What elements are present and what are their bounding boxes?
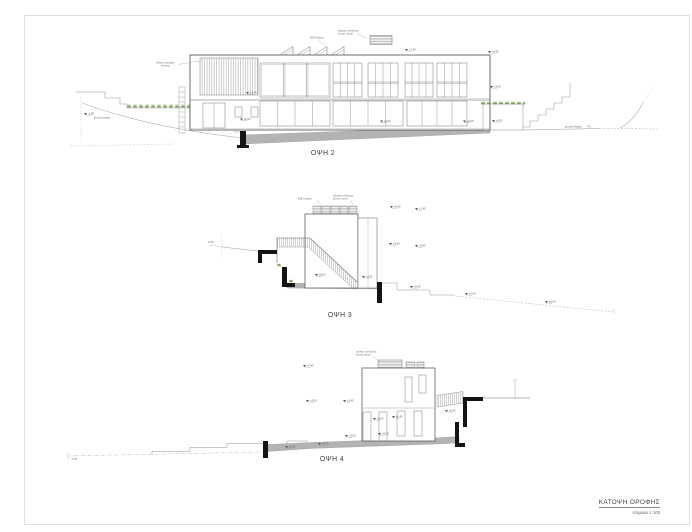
leader-line	[372, 356, 380, 361]
elevation-4-caption: ΟΨΗ 4	[297, 456, 367, 463]
svg-text:±0.00: ±0.00	[244, 117, 251, 121]
svg-text:±0.00: ±0.00	[549, 300, 556, 304]
building	[179, 55, 490, 133]
level-text: -2.80	[88, 112, 94, 116]
collector-label-2: ζεστού νερού	[356, 354, 371, 357]
svg-text:+0.05: +0.05	[382, 432, 389, 436]
solar-panels	[280, 47, 344, 56]
railing	[437, 379, 530, 407]
terrain-right	[523, 83, 660, 130]
solar-collector	[406, 362, 415, 368]
leader-line	[357, 34, 367, 39]
svg-text:+0.05: +0.05	[496, 119, 503, 123]
svg-text:+0.05: +0.05	[349, 434, 356, 438]
leader-line	[317, 201, 321, 206]
svg-text:+3.45: +3.45	[494, 85, 501, 89]
elevation-3-caption: ΟΨΗ 3	[305, 312, 375, 319]
svg-text:+3.45: +3.45	[347, 399, 354, 403]
svg-text:+0.05: +0.05	[467, 119, 474, 123]
svg-text:+6.95: +6.95	[394, 205, 401, 209]
solar-collector	[378, 360, 402, 368]
ground-label-left: φυσικό έδαφος	[94, 117, 111, 120]
sheet-scale: Κλίμακα 1:100	[599, 510, 660, 515]
solar-collector	[417, 362, 424, 368]
svg-text:+0.05: +0.05	[322, 442, 329, 446]
retaining-wall-upper	[258, 250, 277, 263]
svg-text:±0.00: ±0.00	[289, 445, 296, 449]
level-text: -7.45	[71, 457, 77, 461]
planting	[289, 280, 293, 283]
solar-collector	[370, 36, 392, 45]
building	[362, 356, 435, 441]
roof-equipment: ηλιακός συλλέκτης ζεστού νερού Φ/Β πλαίσ…	[280, 30, 392, 56]
planting-strip-right	[480, 101, 525, 104]
leader-line	[351, 201, 353, 206]
ground-label-right: φυσικό έδαφος	[565, 125, 582, 128]
elevation-4-drawing: -7.45	[60, 340, 540, 470]
retaining-wall-upper-right	[463, 397, 483, 427]
svg-text:+0.05: +0.05	[469, 292, 476, 296]
title-block: ΚΑΤΟΨΗ ΟΡΟΦΗΣ Κλίμακα 1:100	[599, 491, 660, 515]
svg-text:+3.45: +3.45	[393, 242, 400, 246]
svg-text:+6.95: +6.95	[492, 50, 499, 54]
louver-screen	[200, 58, 258, 95]
drawing-sheet: -2.80 φυσικό έδαφος φυσικό έδαφος 7%	[0, 0, 692, 532]
elevation-3-figure: 2.5%	[205, 190, 625, 325]
elevation-2-caption: ΟΨΗ 2	[288, 150, 358, 157]
svg-text:+0.45: +0.45	[449, 409, 456, 413]
retaining-wall-right	[377, 282, 382, 303]
svg-text:+0.45: +0.45	[396, 415, 403, 419]
retaining-wall-lower	[282, 267, 295, 287]
svg-text:+3.45: +3.45	[250, 91, 257, 95]
elevation-4-figure: -7.45	[60, 340, 540, 470]
pv-label: Φ/Β πλαίσια	[298, 198, 312, 201]
sheet-title: ΚΑΤΟΨΗ ΟΡΟΦΗΣ	[599, 499, 660, 508]
pv-label: Φ/Β πλαίσια	[310, 37, 324, 40]
roof-collectors	[313, 206, 357, 214]
svg-text:+3.95: +3.95	[419, 244, 426, 248]
ladder	[179, 87, 185, 133]
svg-text:+7.45: +7.45	[307, 364, 314, 368]
planting	[277, 264, 281, 267]
collector-label-2: ζεστού νερού	[333, 198, 348, 201]
slope-label-right: 7%	[587, 125, 591, 128]
elevation-3-drawing: 2.5%	[205, 190, 625, 325]
svg-text:+0.05: +0.05	[366, 275, 373, 279]
terrain-left	[210, 235, 258, 257]
collector-label-2: ζεστού νερού	[338, 33, 353, 36]
louver-label-2: σκίασης	[161, 65, 171, 68]
svg-text:+0.45: +0.45	[414, 285, 421, 289]
svg-text:±0.00: ±0.00	[319, 273, 326, 277]
svg-text:+3.95: +3.95	[310, 399, 317, 403]
retaining-wall-left	[263, 441, 268, 458]
elevation-2-drawing: -2.80 φυσικό έδαφος φυσικό έδαφος 7%	[60, 25, 665, 165]
svg-text:+7.45: +7.45	[419, 207, 426, 211]
svg-text:+0.05: +0.05	[377, 417, 384, 421]
slope-label-left: 2.5%	[208, 241, 214, 244]
svg-text:+0.05: +0.05	[384, 119, 391, 123]
elevation-2-figure: -2.80 φυσικό έδαφος φυσικό έδαφος 7%	[60, 25, 665, 165]
leader-line	[318, 40, 325, 47]
svg-text:+7.45: +7.45	[409, 48, 416, 52]
